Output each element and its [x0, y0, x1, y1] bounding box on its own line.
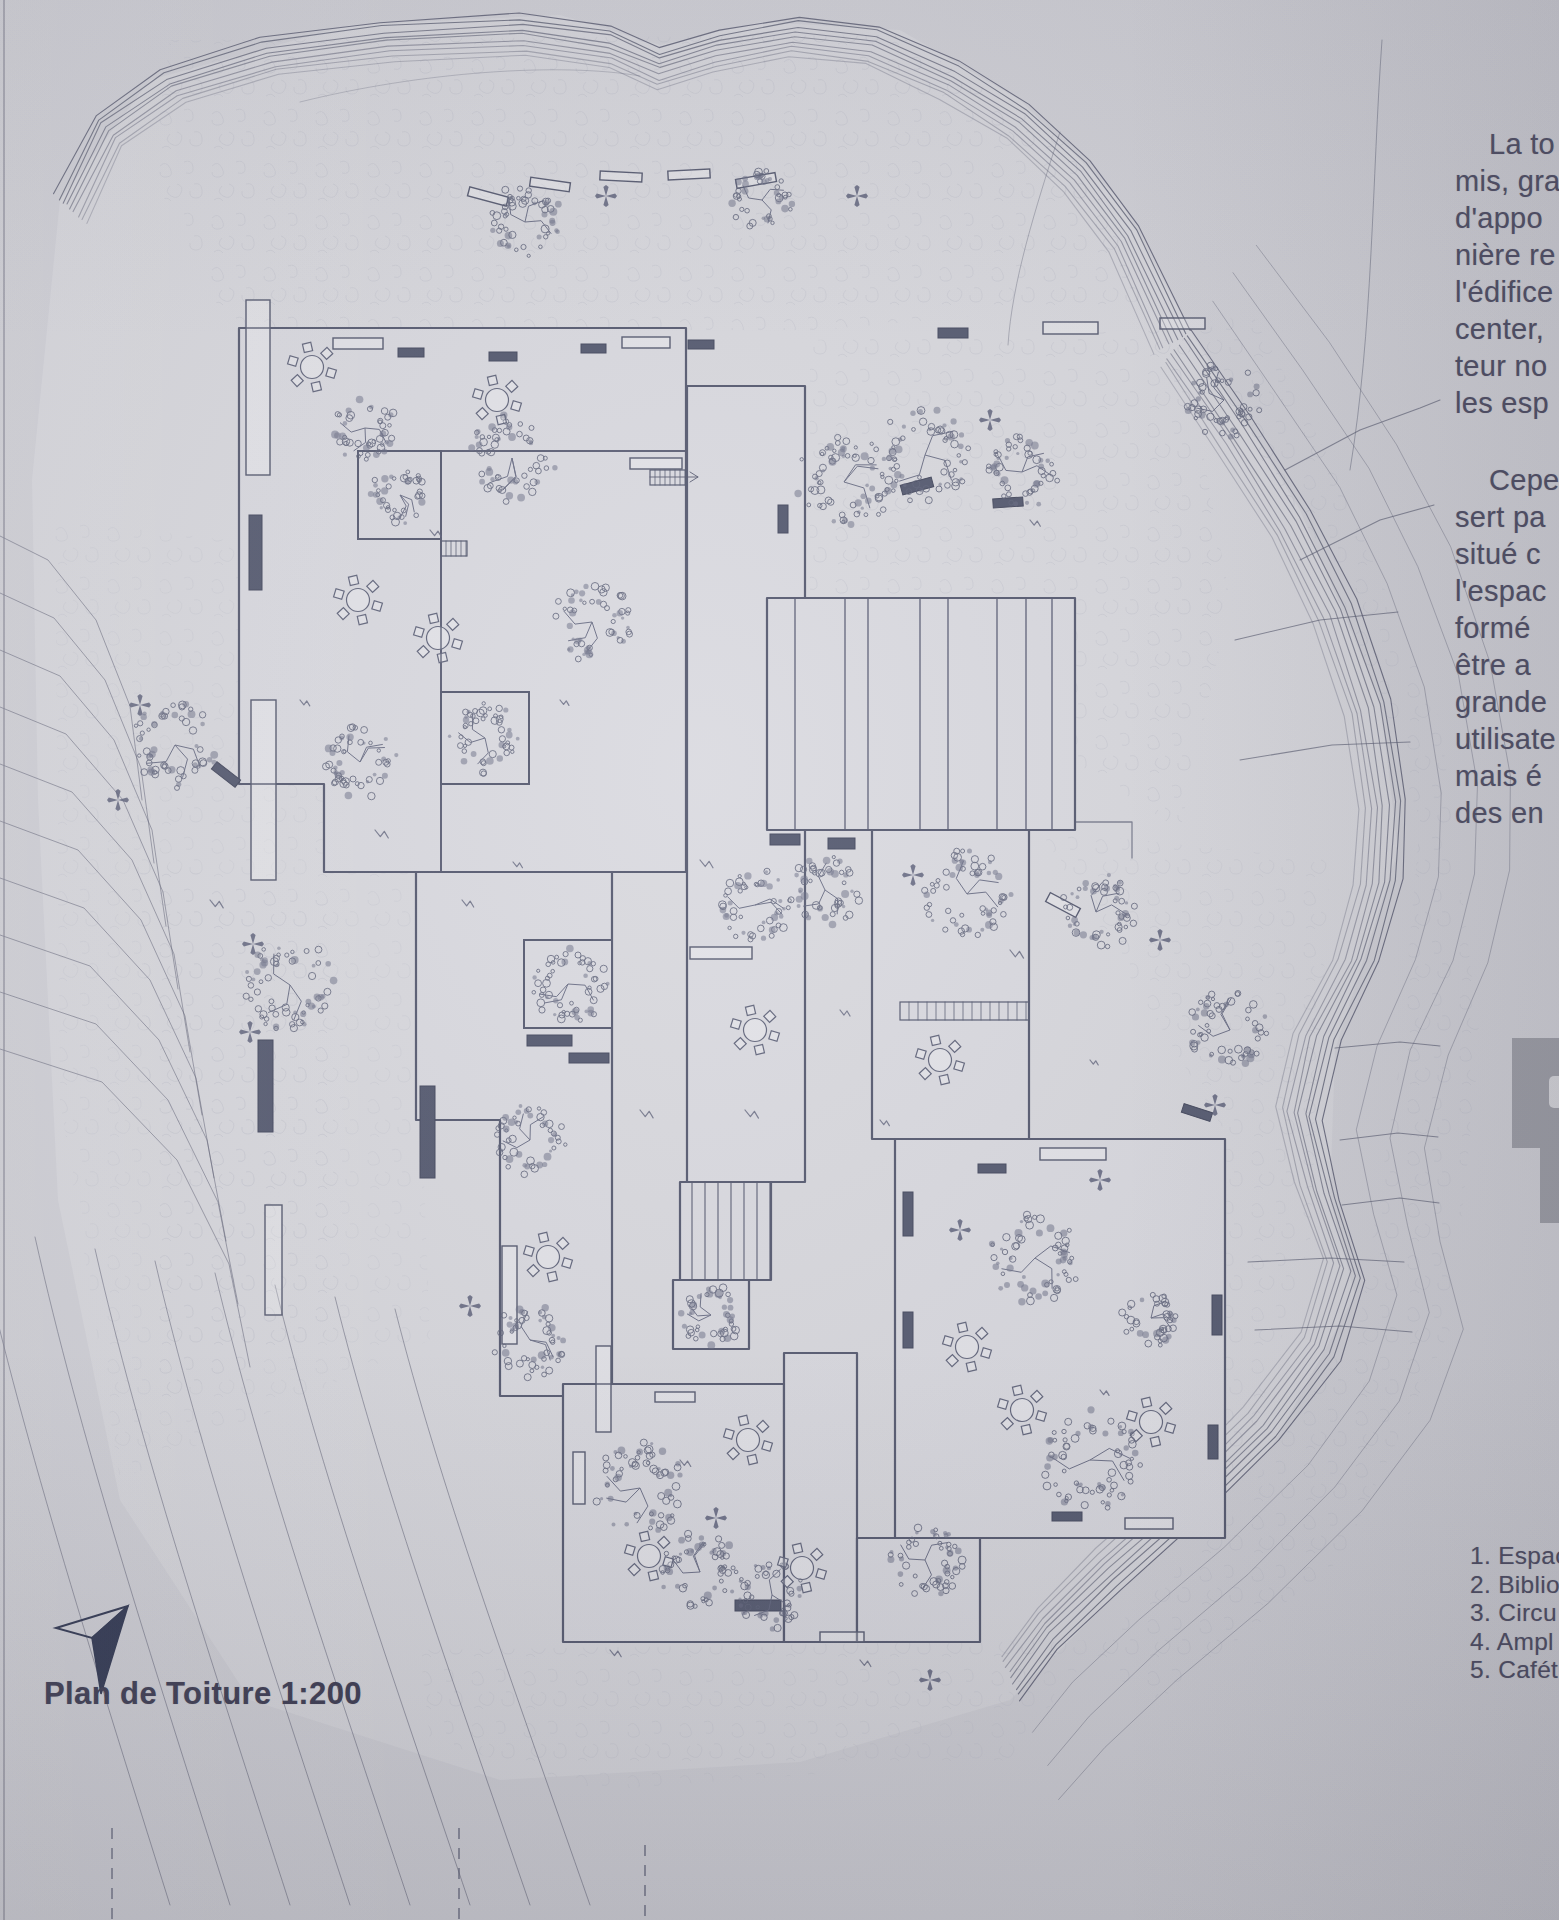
legend-item: 2. Biblio	[1470, 1571, 1559, 1600]
fold-dash-marks	[112, 1828, 645, 1920]
site-contours-and-buildings	[0, 13, 1559, 1920]
legend-item: 1. Espac	[1470, 1542, 1559, 1571]
roof-plan-drawing	[0, 0, 1559, 1920]
legend-item: 4. Ampl	[1470, 1628, 1559, 1657]
description-paragraph-1: La to mis, gra d'appo nière re l'édifice…	[1455, 126, 1559, 422]
legend-item: 5. Cafét	[1470, 1656, 1559, 1685]
presentation-board: La to mis, gra d'appo nière re l'édifice…	[0, 0, 1559, 1920]
plan-legend: 1. Espac 2. Biblio 3. Circu 4. Ampl 5. C…	[1470, 1542, 1559, 1685]
description-paragraph-2: Cepe sert pa situé c l'espac formé être …	[1455, 462, 1559, 832]
legend-item: 3. Circu	[1470, 1599, 1559, 1628]
plan-title: Plan de Toiture 1:200	[44, 1676, 362, 1712]
cropped-grey-glyph	[1512, 1038, 1559, 1223]
paper-edge-line	[3, 0, 5, 1920]
